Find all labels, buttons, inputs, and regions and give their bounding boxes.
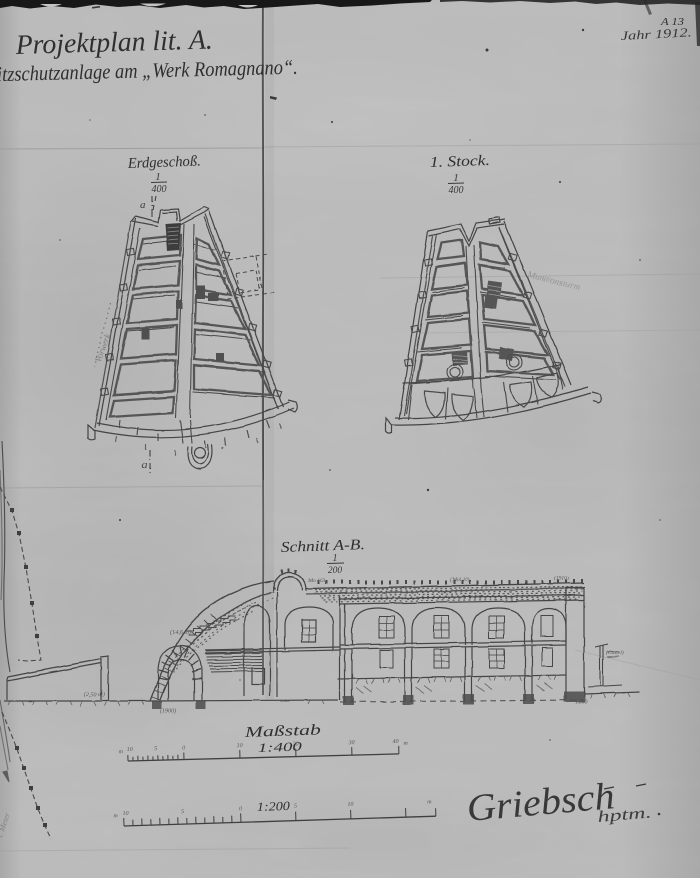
svg-text:(14,6 m): (14,6 m)	[170, 629, 190, 636]
svg-text:(Castel): (Castel)	[606, 649, 624, 656]
svg-text:10: 10	[347, 802, 353, 808]
svg-text:1: 1	[333, 553, 338, 564]
svg-text:Erdgeschoß.: Erdgeschoß.	[127, 153, 201, 172]
svg-text:1: 1	[453, 172, 459, 184]
svg-text:400: 400	[152, 184, 167, 195]
svg-text:400: 400	[449, 185, 464, 196]
svg-text:10: 10	[237, 743, 243, 749]
svg-text:10: 10	[127, 747, 133, 753]
svg-text:20: 20	[293, 742, 299, 748]
svg-text:Projektplan lit. A.: Projektplan lit. A.	[14, 25, 213, 62]
svg-text:a: a	[142, 459, 148, 471]
svg-text:(1910): (1910)	[554, 575, 569, 582]
svg-text:40: 40	[392, 738, 398, 745]
svg-text:0: 0	[182, 745, 185, 751]
svg-text:Mo 163: Mo 163	[307, 578, 325, 584]
svg-text:Schnitt A-B.: Schnitt A-B.	[281, 537, 366, 556]
svg-text:200: 200	[328, 566, 343, 576]
svg-text:a: a	[140, 199, 146, 211]
svg-text:30: 30	[348, 740, 355, 746]
svg-text:(2,50 m): (2,50 m)	[84, 691, 104, 698]
svg-text:1. Stock.: 1. Stock.	[430, 153, 491, 171]
svg-text:5: 5	[181, 809, 184, 815]
svg-text:1900: 1900	[575, 699, 587, 705]
svg-text:10: 10	[123, 811, 129, 817]
svg-text:Maßstab: Maßstab	[243, 722, 322, 741]
svg-text:(Mol 10): (Mol 10)	[450, 576, 470, 583]
svg-text:1: 1	[155, 171, 161, 183]
svg-text:5: 5	[294, 804, 297, 810]
svg-text:0: 0	[239, 806, 242, 812]
svg-text:(1900): (1900)	[160, 708, 176, 715]
svg-text:5: 5	[154, 746, 157, 752]
svg-text:1:200: 1:200	[257, 799, 291, 814]
